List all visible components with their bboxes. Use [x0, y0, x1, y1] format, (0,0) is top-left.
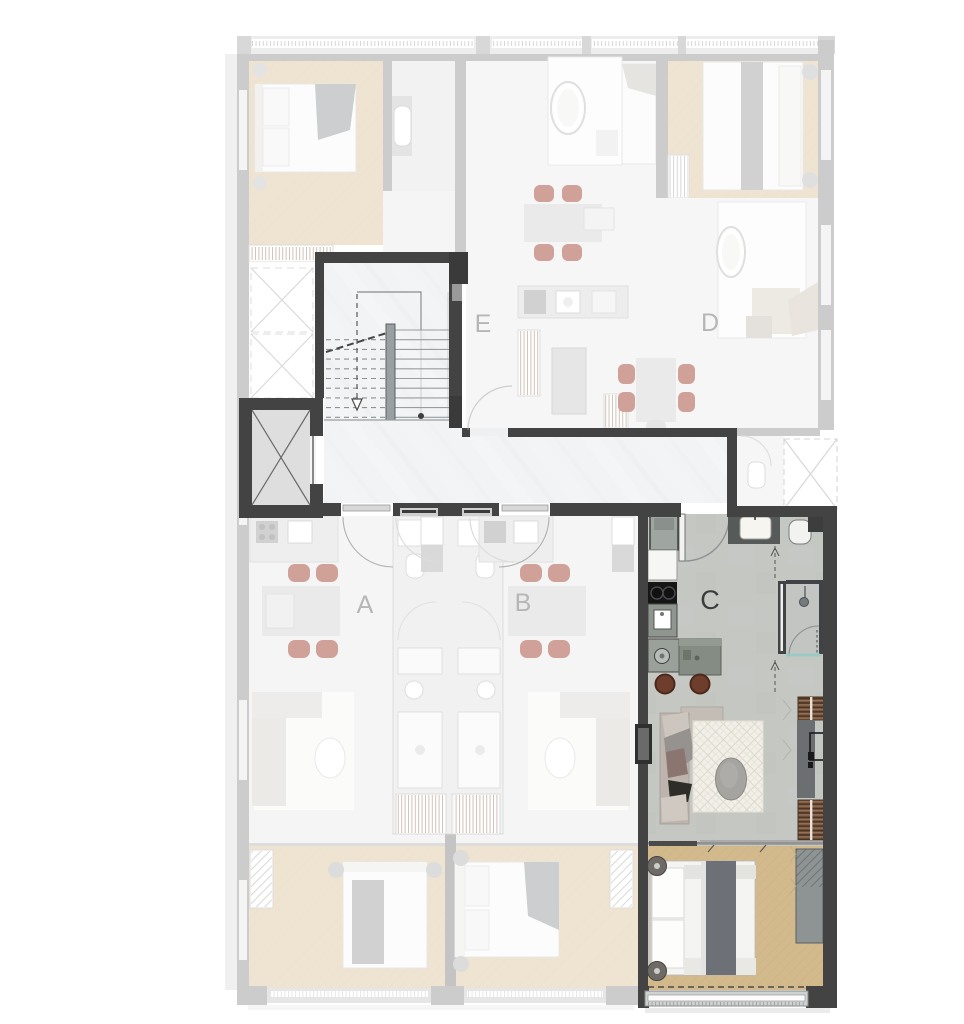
svg-text:A: A	[357, 591, 374, 619]
svg-text:C: C	[700, 585, 720, 615]
svg-text:D: D	[701, 309, 719, 337]
svg-text:B: B	[515, 589, 532, 617]
svg-text:E: E	[475, 310, 492, 338]
